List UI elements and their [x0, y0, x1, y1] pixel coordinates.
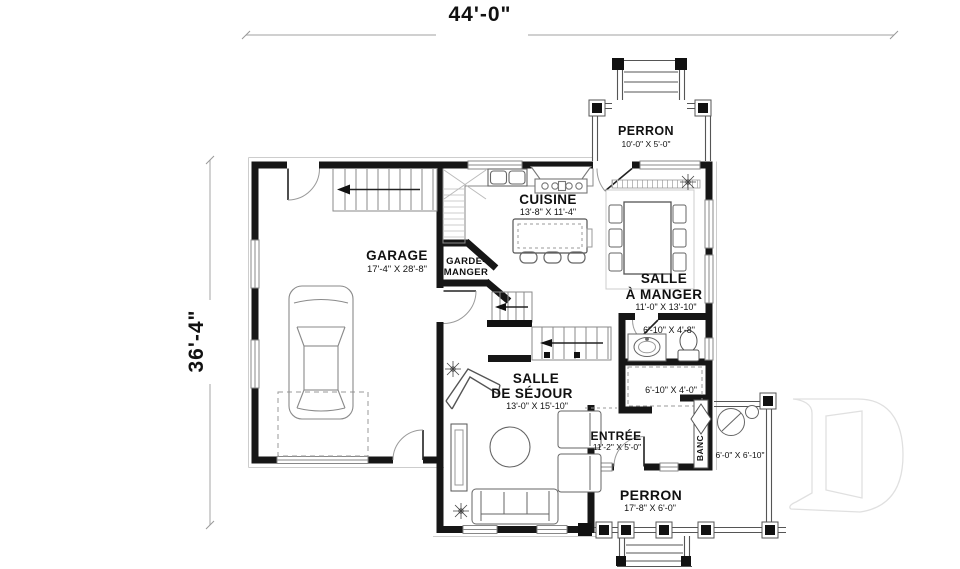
- garde-manger-label-1: GARDE-: [446, 256, 486, 267]
- car: [289, 286, 353, 419]
- salle-a-manger-size: 11'-0" X 13'-10": [635, 302, 696, 312]
- sejour-size: 13'-0" X 15'-10": [506, 401, 568, 411]
- window: [660, 463, 678, 471]
- dining-table: [624, 202, 671, 274]
- porch-steps: [617, 536, 692, 567]
- plant-icon: [445, 361, 461, 377]
- door-garage-rear: [393, 430, 423, 460]
- kitchen-island: [513, 219, 592, 263]
- window: [640, 161, 700, 169]
- salle-eau-size: 6'-10" X 4'-8": [643, 325, 695, 335]
- window: [251, 340, 259, 388]
- window: [705, 200, 713, 248]
- cuisine-size: 13'-8" X 11'-4": [520, 207, 576, 217]
- side-table: [746, 406, 759, 419]
- banc-label: BANC: [695, 435, 705, 461]
- sofa: [472, 489, 558, 524]
- salle-a-manger-label-2: À MANGER: [626, 287, 703, 302]
- porch-side: [718, 406, 759, 436]
- plant-icon: [680, 174, 696, 190]
- porch-posts: [578, 393, 778, 566]
- window: [251, 240, 259, 288]
- penderie-size: 6'-10" X 4'-0": [645, 385, 697, 395]
- perron-haut-label: PERRON: [618, 124, 674, 138]
- garde-manger-label-2: MANGER: [444, 267, 489, 278]
- garage-label: GARAGE: [366, 248, 428, 263]
- window: [537, 526, 567, 534]
- floor-plan-drawing: 44'-0" 36'-4": [0, 0, 960, 569]
- perron-bas-label: PERRON: [620, 487, 682, 503]
- overall-width-dimension: 44'-0": [449, 3, 512, 26]
- perron-haut-size: 10'-0" X 5'-0": [622, 139, 671, 149]
- kitchen-sink: [488, 169, 527, 186]
- garage-size: 17'-4" X 28'-8": [367, 264, 427, 275]
- window: [463, 526, 497, 534]
- porche-cote-size: 6'-0" X 6'-10": [716, 450, 765, 460]
- porch-posts: [589, 58, 711, 116]
- tv-cabinet: [451, 424, 467, 491]
- garage-door: [277, 392, 368, 464]
- bathroom-fixtures: [628, 331, 699, 362]
- watermark-logo: [790, 399, 903, 512]
- sejour-label-1: SALLE: [513, 371, 559, 386]
- toilet: [678, 331, 699, 362]
- window: [705, 255, 713, 303]
- cuisine-label: CUISINE: [519, 192, 577, 207]
- salle-a-manger-label-1: SALLE: [641, 271, 687, 286]
- floor-plan-canvas: 44'-0" 36'-4": [0, 0, 960, 569]
- door-garage-hall: [444, 291, 477, 324]
- round-table: [490, 427, 530, 467]
- dimension-lines: 44'-0" 36'-4": [185, 3, 898, 529]
- stove: [531, 167, 591, 194]
- plant-icon: [453, 503, 469, 519]
- armchair: [558, 454, 601, 492]
- porch-bottom: [578, 393, 786, 567]
- vanity-sink: [628, 334, 666, 361]
- sejour-label-2: DE SÉJOUR: [491, 386, 573, 401]
- entree-size: 11'-2" X 5'-0": [593, 442, 641, 452]
- doors: [288, 169, 658, 467]
- perron-bas-size: 17'-8" X 6'-0": [624, 503, 676, 513]
- overall-depth-dimension: 36'-4": [185, 310, 208, 373]
- window: [468, 161, 522, 169]
- window: [705, 338, 713, 360]
- entree-label: ENTRÉE: [590, 428, 641, 443]
- door-garage-side: [288, 169, 320, 201]
